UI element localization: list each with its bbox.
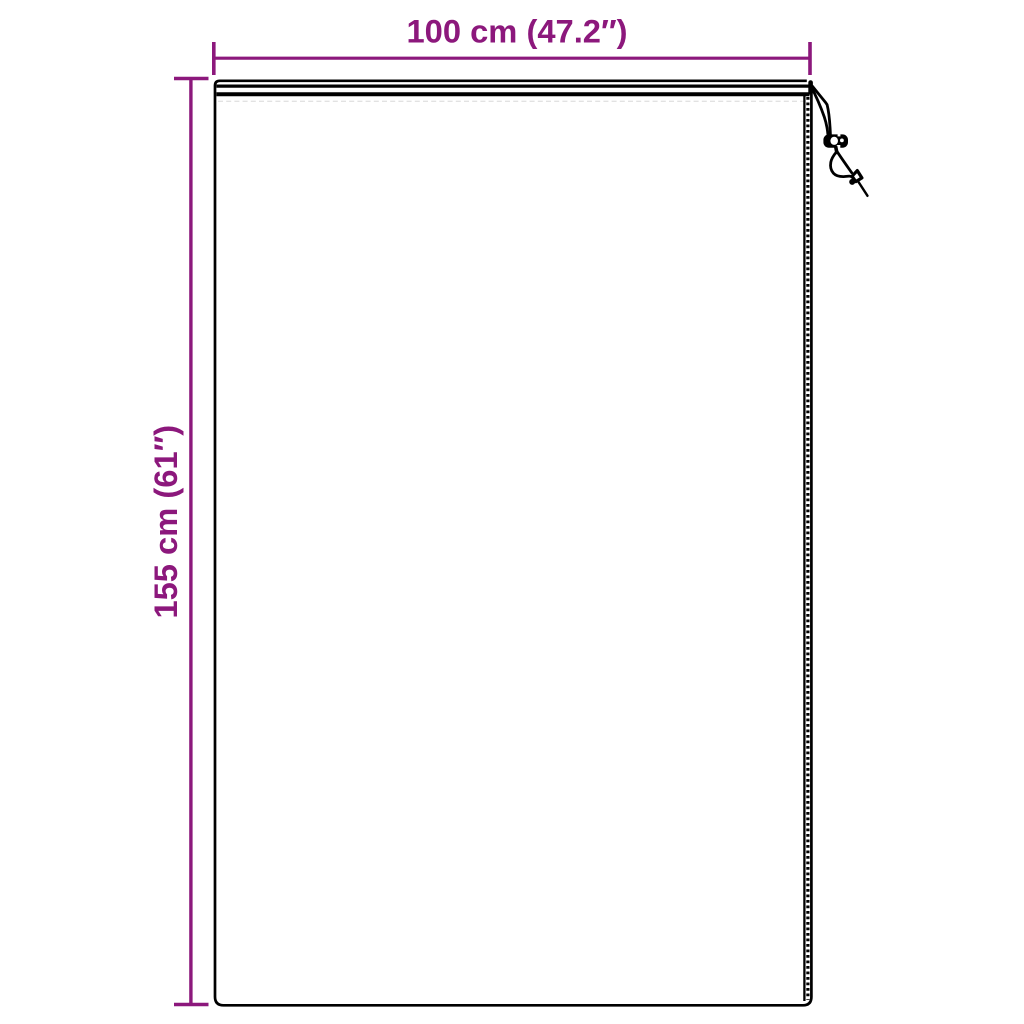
- svg-text:100 cm (47.2″): 100 cm (47.2″): [407, 13, 628, 50]
- svg-text:155 cm (61″): 155 cm (61″): [147, 425, 184, 619]
